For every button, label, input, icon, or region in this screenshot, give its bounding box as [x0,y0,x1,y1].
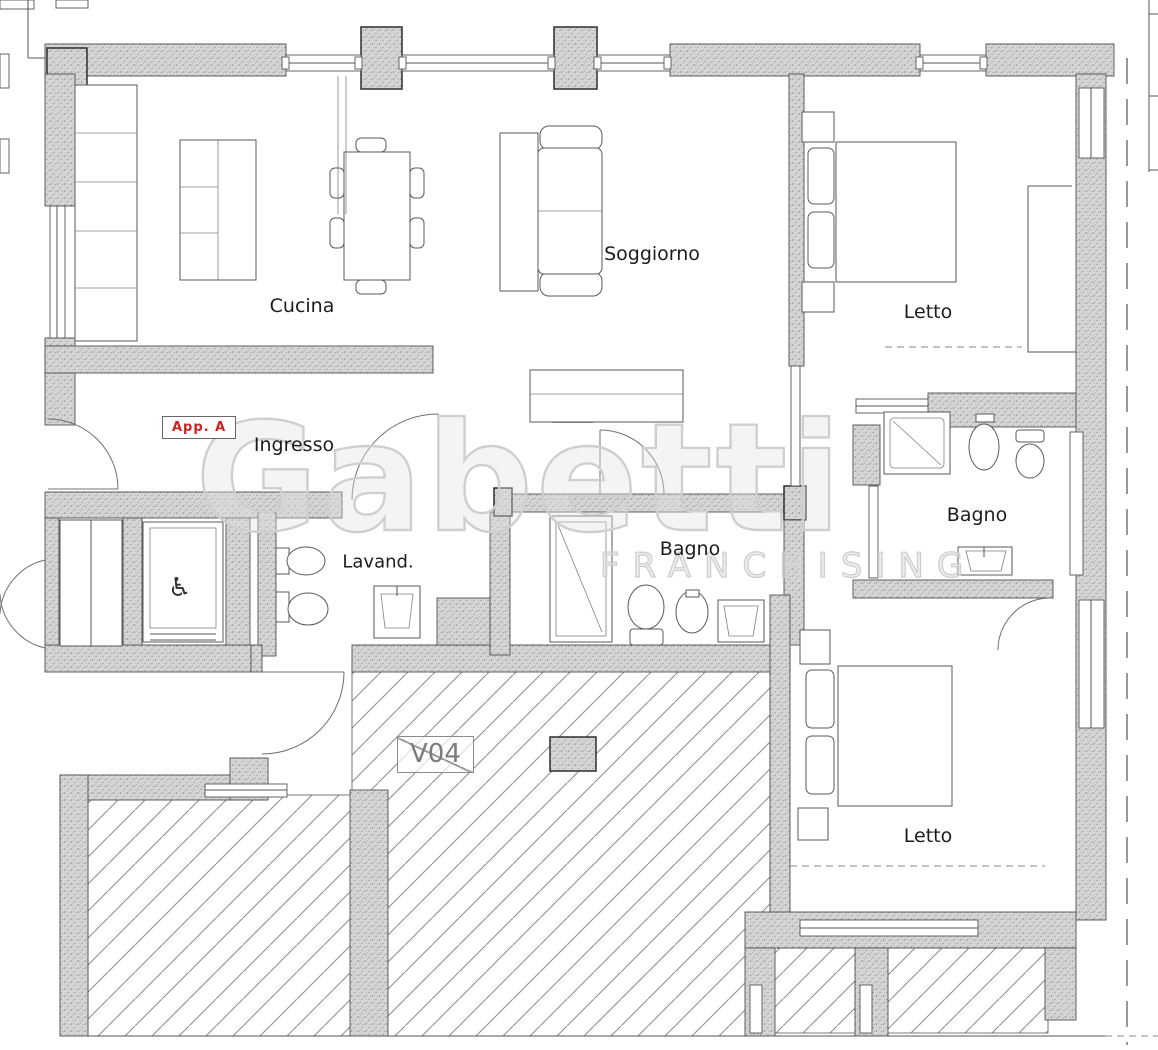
room-label-ingresso: Ingresso [254,434,334,456]
room-label-bagno-2: Bagno [660,538,720,560]
stairwell [60,520,122,646]
room-label-bagno-1: Bagno [947,504,1007,526]
watermark-subtitle: FRANCHISING [600,546,976,586]
terrace-code-label: V04 [397,736,474,773]
room-label-cucina: Cucina [270,295,335,317]
room-label-letto-2: Letto [904,825,952,847]
kitchen-furniture [75,76,424,341]
room-label-letto-1: Letto [904,301,952,323]
room-label-soggiorno: Soggiorno [604,243,700,265]
living-furniture [500,126,683,422]
room-label-lavanderia: Lavand. [342,552,413,573]
unit-label: App. A [162,416,236,439]
floor-plan: ♿ [0,0,1158,1050]
wheelchair-icon: ♿ [168,573,191,603]
